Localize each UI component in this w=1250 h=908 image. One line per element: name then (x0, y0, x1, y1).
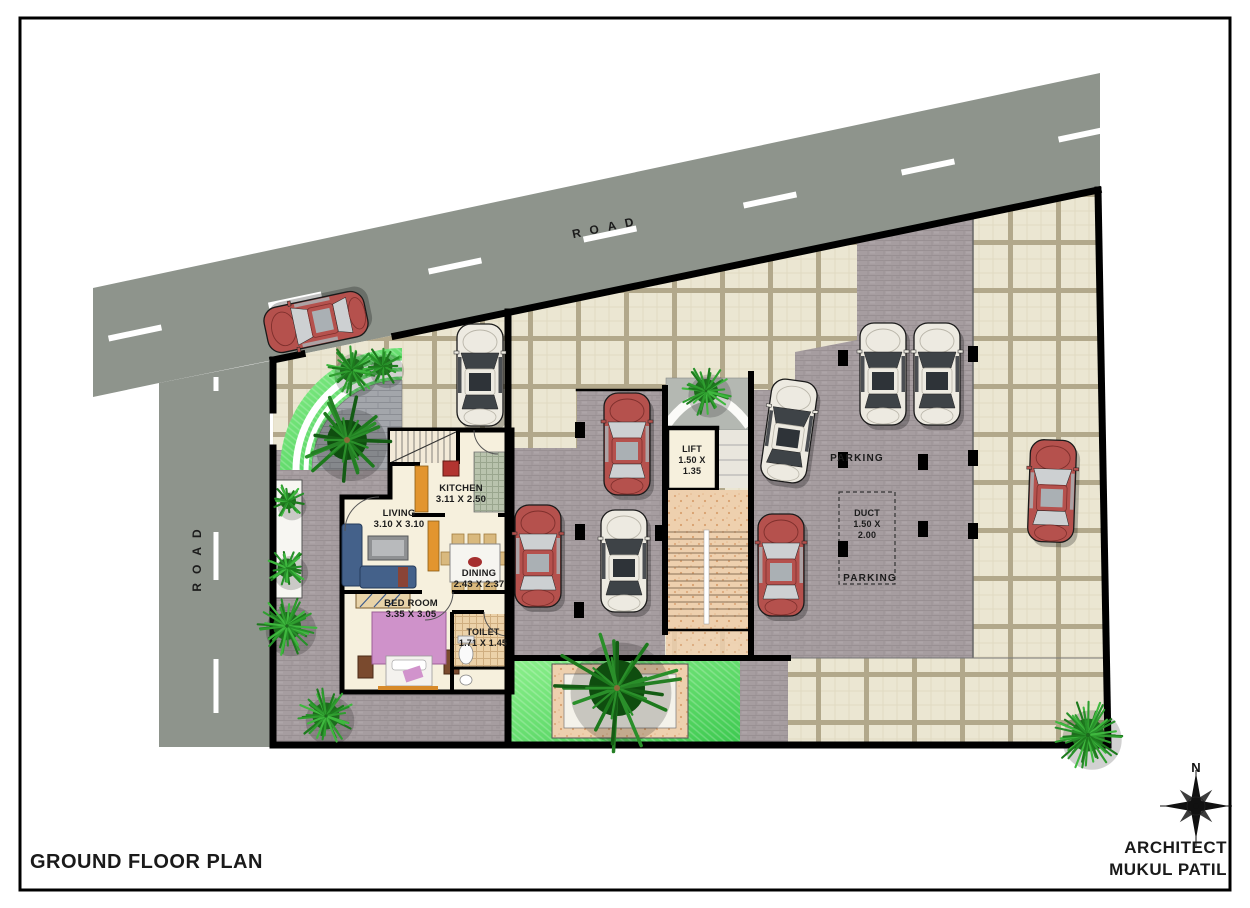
bed-runner (378, 686, 438, 690)
car-red (601, 393, 654, 500)
pillow (392, 660, 426, 670)
architect-name: MUKUL PATIL (1109, 860, 1227, 879)
room-label-kitchen: KITCHEN3.11 X 2.50 (436, 483, 486, 505)
architect-title: ARCHITECT (1124, 838, 1227, 857)
column-marker (655, 525, 665, 541)
north-label: N (1191, 760, 1200, 775)
room-label-parking-1: PARKING (830, 453, 884, 464)
road-left-label: ROAD (190, 520, 204, 591)
lift-landing (719, 430, 749, 488)
kitchen-counter (415, 466, 428, 512)
room-label-bedroom: BED ROOM3.35 X 3.05 (384, 598, 438, 620)
kitchen-stove (443, 461, 459, 476)
column-marker (968, 523, 978, 539)
paving-bottom-strip (740, 658, 788, 745)
road-dash (214, 532, 219, 580)
wash-basin (460, 675, 472, 685)
room-label-parking-2: PARKING (843, 573, 897, 584)
car-white (598, 510, 651, 617)
stair-stringer (704, 530, 709, 624)
plan-drawing: ROAD ROAD (0, 0, 1250, 908)
sofa-vertical (342, 524, 362, 586)
car-red (755, 514, 808, 621)
house-staircase (390, 430, 458, 464)
column-marker (968, 450, 978, 466)
car-white (911, 323, 964, 430)
table-dish (468, 557, 482, 567)
column-marker (968, 346, 978, 362)
nightstand-left (358, 656, 373, 678)
car-white (454, 324, 507, 431)
column-marker (574, 602, 584, 618)
floor-plan-sheet: ROAD ROAD (0, 0, 1250, 908)
sofa-cushion (398, 567, 408, 587)
lift-stair-bay (666, 378, 750, 656)
stair-landing-bottom (666, 632, 750, 656)
column-marker (575, 524, 585, 540)
column-marker (918, 521, 928, 537)
road-dash (214, 659, 219, 713)
column-marker (575, 422, 585, 438)
column-marker (918, 454, 928, 470)
road-dash (214, 377, 219, 391)
plan-title: GROUND FLOOR PLAN (30, 851, 263, 873)
car-white (857, 323, 910, 430)
column-marker (838, 350, 848, 366)
cabinet-divider (428, 521, 439, 571)
car-red (512, 505, 565, 612)
car-red (1024, 439, 1081, 548)
column-marker (838, 541, 848, 557)
